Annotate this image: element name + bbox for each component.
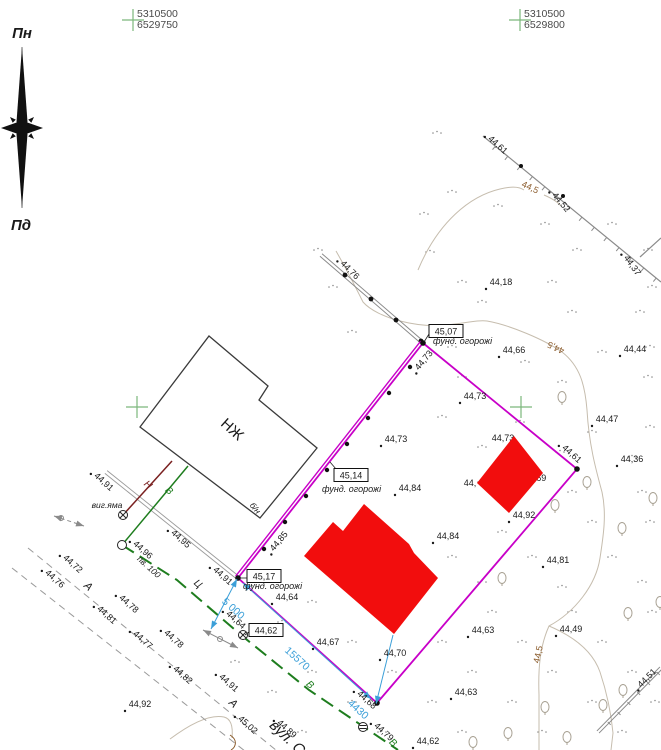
- tree-icon: [498, 573, 506, 584]
- grass-icon: [575, 491, 577, 493]
- grass-icon: [445, 641, 447, 643]
- grass-icon: [351, 640, 353, 642]
- grass-icon: [607, 223, 609, 225]
- grass-icon: [437, 416, 439, 418]
- grass-icon: [595, 431, 597, 433]
- elevation-label: 44,61: [486, 134, 509, 157]
- elevation-label: 44,91: [211, 565, 234, 588]
- spot-point: [370, 723, 372, 725]
- grass-icon: [653, 426, 655, 428]
- grass-icon: [461, 730, 463, 732]
- grass-icon: [431, 700, 433, 702]
- red-building: [477, 436, 543, 513]
- elevation-label: 44,61: [560, 443, 583, 466]
- grass-icon: [275, 691, 277, 693]
- elevation-label: 44,70: [384, 648, 407, 658]
- elevation-label: В: [163, 485, 176, 498]
- boundary-post: [304, 494, 308, 498]
- spot-point: [380, 445, 382, 447]
- spot-point: [619, 355, 621, 357]
- elevation-label: 44,51: [635, 666, 658, 689]
- dimension-arrow: [202, 627, 212, 636]
- elevation-label: 15570: [282, 645, 312, 674]
- grass-icon: [555, 671, 557, 673]
- grass-icon: [307, 601, 309, 603]
- grass-icon: [650, 701, 652, 703]
- spot-point: [353, 691, 355, 693]
- elevation-label: Н: [141, 479, 154, 493]
- elevation-label: 44,63: [472, 625, 495, 635]
- elevation-label: 44,84: [437, 531, 460, 541]
- spot-point: [129, 541, 131, 543]
- leader-line: [424, 334, 429, 342]
- fence-tick: [653, 278, 656, 281]
- grass-icon: [351, 330, 353, 332]
- spot-point: [234, 716, 236, 718]
- grass-icon: [645, 491, 647, 493]
- grass-icon: [647, 375, 649, 377]
- grass-icon: [311, 600, 313, 602]
- grass-icon: [605, 351, 607, 353]
- grass-icon: [497, 531, 499, 533]
- spot-point: [555, 635, 557, 637]
- spot-point: [508, 521, 510, 523]
- compass-south-label: Пд: [11, 217, 31, 234]
- grass-icon: [347, 331, 349, 333]
- boundary-post: [366, 416, 370, 420]
- grass-icon: [653, 521, 655, 523]
- tree-icon: [469, 737, 477, 748]
- contour-line: [170, 716, 232, 739]
- contour-line: [336, 251, 604, 750]
- grass-icon: [332, 285, 334, 287]
- grass-icon: [447, 556, 449, 558]
- grass-icon: [591, 700, 593, 702]
- grass-icon: [524, 360, 526, 362]
- grass-icon: [572, 249, 574, 251]
- elevation-label: 44,18: [490, 277, 513, 287]
- grass-icon: [651, 610, 653, 612]
- elevation-label: 44,5: [520, 179, 540, 195]
- grass-icon: [653, 346, 655, 348]
- spot-point: [542, 566, 544, 568]
- grass-icon: [635, 671, 637, 673]
- elevation-label: 44,36: [621, 454, 644, 464]
- spot-point: [616, 465, 618, 467]
- grass-icon: [277, 621, 279, 623]
- grass-icon: [447, 191, 449, 193]
- grass-icon: [491, 610, 493, 612]
- grass-icon: [565, 381, 567, 383]
- elevation-label: 44,81: [547, 555, 570, 565]
- grass-icon: [347, 641, 349, 643]
- grass-icon: [505, 531, 507, 533]
- grass-icon: [451, 555, 453, 557]
- fence-note-label: фунд. огорожі: [322, 484, 382, 494]
- grass-icon: [427, 701, 429, 703]
- grass-icon: [301, 730, 303, 732]
- grass-icon: [557, 381, 559, 383]
- tree-icon: [619, 685, 627, 696]
- grass-icon: [643, 311, 645, 313]
- grass-icon: [487, 611, 489, 613]
- grass-icon: [601, 640, 603, 642]
- grass-icon: [315, 671, 317, 673]
- boundary-post: [262, 547, 266, 551]
- grass-icon: [465, 281, 467, 283]
- tree-icon: [563, 732, 571, 743]
- grass-icon: [336, 286, 338, 288]
- site-plan-map: 44,7344,69НЖ45,07фунд. огорожі45,14фунд.…: [0, 0, 661, 750]
- spot-point: [124, 710, 126, 712]
- grass-icon: [591, 430, 593, 432]
- grass-icon: [591, 520, 593, 522]
- grass-icon: [387, 671, 389, 673]
- fence-post: [519, 164, 523, 168]
- grass-icon: [501, 205, 503, 207]
- elevation-label: 44,91: [92, 471, 115, 494]
- elevation-label: А: [81, 579, 95, 594]
- grass-icon: [637, 581, 639, 583]
- grass-icon: [571, 490, 573, 492]
- grass-icon: [643, 249, 645, 251]
- grass-icon: [457, 376, 459, 378]
- boxed-elevation-value: 45,17: [253, 572, 276, 582]
- spot-point: [637, 689, 639, 691]
- spot-point: [394, 494, 396, 496]
- grass-icon: [395, 671, 397, 673]
- elevation-label: 44,5: [546, 339, 566, 355]
- grass-icon: [631, 670, 633, 672]
- elevation-label: 44,67: [317, 637, 340, 647]
- grass-icon: [457, 281, 459, 283]
- grass-icon: [647, 611, 649, 613]
- elevation-label: 44,47: [596, 414, 619, 424]
- grass-icon: [455, 556, 457, 558]
- boxed-elevation-value: 44,62: [255, 626, 278, 636]
- grass-icon: [471, 670, 473, 672]
- grass-icon: [485, 446, 487, 448]
- elevation-label: 44,44: [624, 344, 647, 354]
- elevation-label: 44,92: [129, 699, 152, 709]
- grass-icon: [427, 213, 429, 215]
- grass-icon: [557, 586, 559, 588]
- grass-icon: [535, 556, 537, 558]
- boundary-corner: [574, 466, 580, 472]
- grass-icon: [321, 249, 323, 251]
- grass-icon: [621, 730, 623, 732]
- boxed-elevation-value: 45,14: [340, 471, 363, 481]
- elevation-label: 44,62: [417, 736, 440, 746]
- spot-point: [90, 473, 92, 475]
- grass-icon: [461, 280, 463, 282]
- grass-icon: [645, 581, 647, 583]
- grass-icon: [548, 223, 550, 225]
- grass-icon: [615, 223, 617, 225]
- contour-line: [418, 187, 524, 270]
- coordinate-label: 6529800: [524, 19, 565, 31]
- compass-south-spike: [17, 125, 28, 208]
- elevation-label: 44,63: [455, 687, 478, 697]
- grass-icon: [281, 620, 283, 622]
- grass-icon: [517, 641, 519, 643]
- grass-icon: [497, 204, 499, 206]
- spot-point: [498, 356, 500, 358]
- road-edge-dashed: [12, 568, 250, 750]
- grass-icon: [477, 581, 479, 583]
- grass-icon: [485, 301, 487, 303]
- spot-point: [432, 542, 434, 544]
- grass-icon: [645, 426, 647, 428]
- grass-icon: [649, 425, 651, 427]
- elevation-label: 44,76: [43, 568, 66, 591]
- dimension-arrow: [208, 621, 217, 631]
- grass-icon: [419, 213, 421, 215]
- grass-icon: [575, 311, 577, 313]
- grass-icon: [643, 376, 645, 378]
- elevation-label: 44,49: [560, 624, 583, 634]
- boxed-elevation-value: 45,07: [435, 327, 458, 337]
- boundary-post: [325, 468, 329, 472]
- grass-icon: [531, 555, 533, 557]
- elevation-label: 44,73: [464, 391, 487, 401]
- spot-point: [467, 636, 469, 638]
- grass-icon: [527, 556, 529, 558]
- grass-icon: [547, 281, 549, 283]
- well-icon: [118, 541, 127, 550]
- compass-diagonal-arrow: [8, 115, 15, 122]
- tree-icon: [551, 500, 559, 511]
- spot-point: [160, 630, 162, 632]
- elevation-label: 44,82: [171, 664, 194, 687]
- fence-note-label: фунд. огорожі: [243, 581, 303, 591]
- grass-icon: [551, 280, 553, 282]
- elevation-label: А: [226, 696, 240, 711]
- grass-icon: [511, 700, 513, 702]
- grass-icon: [313, 249, 315, 251]
- grass-icon: [647, 286, 649, 288]
- grass-icon: [445, 416, 447, 418]
- grass-icon: [485, 581, 487, 583]
- elevation-label: 44,66: [503, 345, 526, 355]
- fence-tick: [616, 248, 619, 251]
- spot-point: [450, 698, 452, 700]
- tree-icon: [599, 700, 607, 711]
- fence-tick: [530, 177, 533, 180]
- elevation-label: 44,5: [531, 645, 544, 664]
- grass-icon: [475, 671, 477, 673]
- compass-north-spike: [17, 47, 28, 131]
- grass-icon: [571, 310, 573, 312]
- grass-icon: [432, 132, 434, 134]
- compass-rose: ПнПд: [1, 25, 43, 234]
- grass-icon: [465, 731, 467, 733]
- grass-icon: [651, 285, 653, 287]
- grass-icon: [455, 346, 457, 348]
- fence-line: [640, 238, 661, 257]
- grass-icon: [615, 556, 617, 558]
- tree-icon: [504, 728, 512, 739]
- spot-point: [415, 372, 417, 374]
- grass-icon: [635, 311, 637, 313]
- elevation-label: 44,95: [169, 528, 192, 551]
- grass-icon: [391, 670, 393, 672]
- elevation-label: Ц: [191, 578, 204, 591]
- grass-icon: [617, 731, 619, 733]
- grass-icon: [597, 351, 599, 353]
- grass-icon: [567, 491, 569, 493]
- red-building: [304, 504, 438, 634]
- elevation-label: 44,64: [276, 592, 299, 602]
- compass-east-spike: [22, 122, 43, 134]
- elevation-label: 44,84: [399, 483, 422, 493]
- grass-icon: [267, 691, 269, 693]
- grass-icon: [525, 641, 527, 643]
- grass-icon: [355, 331, 357, 333]
- elevation-label: 45,02: [236, 714, 259, 737]
- grass-icon: [305, 731, 307, 733]
- grass-icon: [477, 301, 479, 303]
- fence-tick: [542, 187, 545, 190]
- spot-point: [215, 674, 217, 676]
- elevation-label: 44,73: [385, 434, 408, 444]
- grass-icon: [587, 521, 589, 523]
- grass-icon: [451, 190, 453, 192]
- spot-point: [129, 631, 131, 633]
- grass-icon: [651, 249, 653, 251]
- fence-tick: [505, 156, 508, 159]
- grass-icon: [547, 671, 549, 673]
- spot-point: [312, 648, 314, 650]
- grass-icon: [595, 701, 597, 703]
- grass-icon: [429, 250, 431, 252]
- grass-icon: [441, 415, 443, 417]
- axis-markers: [53, 513, 239, 651]
- grass-icon: [655, 286, 657, 288]
- grass-icon: [423, 212, 425, 214]
- grass-icon: [447, 346, 449, 348]
- grass-icon: [625, 731, 627, 733]
- spot-point: [222, 611, 224, 613]
- grass-icon: [651, 376, 653, 378]
- elevation-label: 44,78: [162, 628, 185, 651]
- grass-icon: [436, 131, 438, 133]
- grass-icon: [627, 671, 629, 673]
- fence-tick: [604, 237, 607, 240]
- grass-icon: [328, 286, 330, 288]
- elevation-label: 44,91: [217, 672, 240, 695]
- grass-icon: [607, 556, 609, 558]
- elevation-label: 44,52: [550, 190, 572, 214]
- dimension-arrow: [75, 521, 84, 529]
- compass-north-label: Пн: [12, 25, 32, 42]
- grass-icon: [467, 671, 469, 673]
- grass-icon: [234, 660, 236, 662]
- grass-icon: [540, 223, 542, 225]
- grass-icon: [440, 132, 442, 134]
- tree-icon: [558, 392, 566, 403]
- spot-point: [558, 445, 560, 447]
- grass-icon: [507, 701, 509, 703]
- grass-icon: [601, 350, 603, 352]
- grass-icon: [561, 380, 563, 382]
- grass-icon: [576, 248, 578, 250]
- elevation-label: 44,92: [513, 510, 536, 520]
- spot-point: [59, 555, 61, 557]
- grass-icon: [587, 701, 589, 703]
- grass-icon: [597, 641, 599, 643]
- grass-icon: [567, 311, 569, 313]
- compass-diagonal-arrow: [28, 115, 35, 122]
- map-labels: 44,6144,544,5244,3744,7644,1844,6644,444…: [41, 134, 659, 750]
- spot-point: [336, 260, 338, 262]
- grass-icon: [595, 521, 597, 523]
- spot-point: [41, 570, 43, 572]
- grass-icon: [271, 690, 273, 692]
- tree-icon: [541, 702, 549, 713]
- grass-icon: [238, 661, 240, 663]
- grass-icon: [307, 671, 309, 673]
- grass-icon: [521, 640, 523, 642]
- spot-point: [591, 425, 593, 427]
- grass-icon: [555, 281, 557, 283]
- grass-icon: [457, 731, 459, 733]
- grass-icon: [641, 490, 643, 492]
- spot-point: [167, 530, 169, 532]
- grass-icon: [544, 222, 546, 224]
- boundary-post: [387, 391, 391, 395]
- grass-icon: [477, 446, 479, 448]
- tree-icon: [649, 493, 657, 504]
- spot-point: [270, 553, 272, 555]
- tree-icon: [618, 523, 626, 534]
- tree-icon: [656, 597, 661, 608]
- fence-tick: [579, 217, 582, 220]
- spot-point: [209, 567, 211, 569]
- boundary-post: [283, 520, 287, 524]
- coordinate-label: 6529750: [137, 19, 178, 31]
- fence-post: [394, 318, 399, 323]
- grass-icon: [481, 300, 483, 302]
- grass-icon: [580, 249, 582, 251]
- grass-icon: [523, 421, 525, 423]
- grass-icon: [655, 611, 657, 613]
- elevation-label: 44,85: [268, 529, 290, 553]
- grass-icon: [515, 421, 517, 423]
- elevation-label: В: [304, 679, 317, 692]
- fence-tick: [591, 227, 594, 230]
- spot-point: [412, 747, 414, 749]
- elevation-label: 44,: [464, 478, 477, 488]
- elevation-label: 44,77: [131, 629, 154, 652]
- dimension-arrow: [230, 642, 240, 651]
- grass-icon: [355, 641, 357, 643]
- grass-icon: [441, 640, 443, 642]
- compass-diagonal-arrow: [8, 133, 15, 140]
- grass-icon: [575, 611, 577, 613]
- grass-icon: [515, 701, 517, 703]
- spot-point: [620, 254, 622, 256]
- spot-point: [169, 666, 171, 668]
- grass-icon: [493, 205, 495, 207]
- grass-icon: [561, 585, 563, 587]
- tree-icon: [624, 608, 632, 619]
- grass-icon: [637, 491, 639, 493]
- site-plan: 44,7344,69НЖ45,07фунд. огорожі45,14фунд.…: [0, 0, 661, 750]
- tree-icon: [583, 477, 591, 488]
- well-icon: [359, 723, 368, 732]
- grass-icon: [311, 670, 313, 672]
